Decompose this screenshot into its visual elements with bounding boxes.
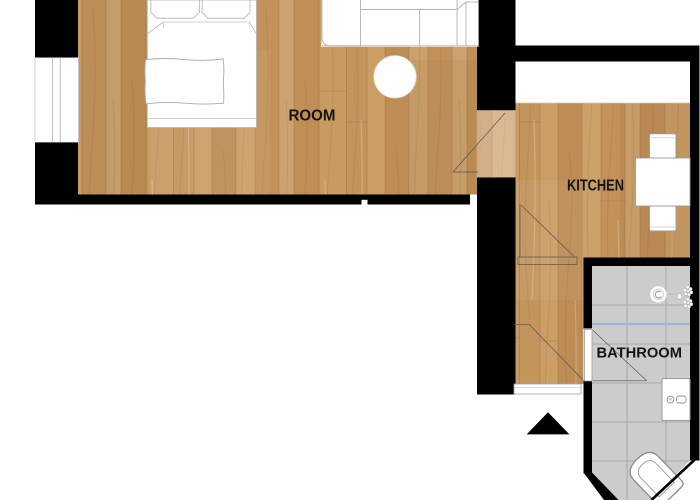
svg-text:ROOM: ROOM bbox=[289, 108, 336, 125]
svg-text:KITCHEN: KITCHEN bbox=[567, 178, 624, 195]
svg-text:BATHROOM: BATHROOM bbox=[597, 345, 683, 362]
